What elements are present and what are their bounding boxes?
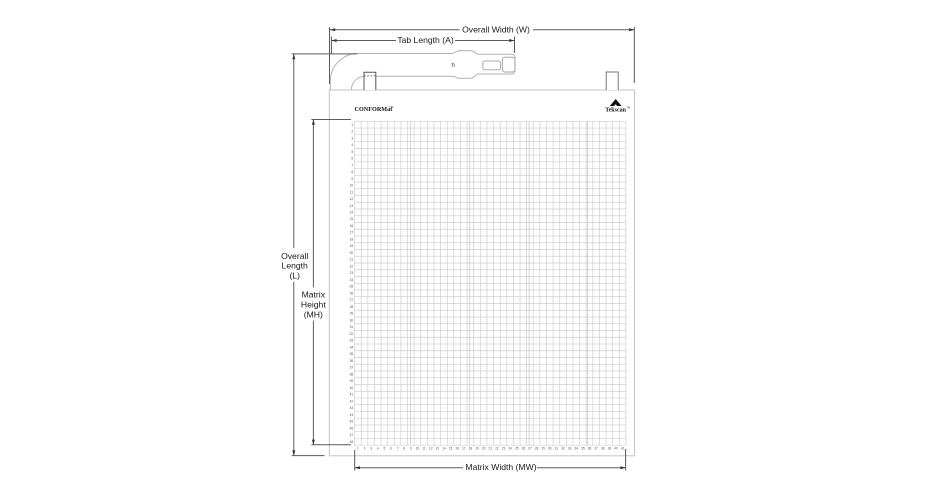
svg-text:1: 1 xyxy=(351,123,353,127)
svg-text:15: 15 xyxy=(449,447,453,451)
svg-text:23: 23 xyxy=(350,271,354,275)
svg-text:34: 34 xyxy=(574,447,578,451)
svg-text:24: 24 xyxy=(350,278,354,282)
svg-text:13: 13 xyxy=(350,204,354,208)
svg-text:8: 8 xyxy=(403,447,405,451)
svg-text:22: 22 xyxy=(495,447,499,451)
svg-text:27: 27 xyxy=(528,447,532,451)
svg-text:35: 35 xyxy=(581,447,585,451)
svg-text:(MH): (MH) xyxy=(304,309,323,319)
svg-text:26: 26 xyxy=(522,447,526,451)
svg-text:7: 7 xyxy=(397,447,399,451)
svg-text:Matrix Width (MW): Matrix Width (MW) xyxy=(465,462,536,472)
svg-text:23: 23 xyxy=(502,447,506,451)
svg-text:4: 4 xyxy=(377,447,379,451)
svg-text:19: 19 xyxy=(350,244,354,248)
svg-text:39: 39 xyxy=(608,447,612,451)
svg-text:42: 42 xyxy=(350,399,354,403)
svg-text:36: 36 xyxy=(588,447,592,451)
svg-text:6: 6 xyxy=(390,447,392,451)
svg-text:37: 37 xyxy=(594,447,598,451)
svg-text:11: 11 xyxy=(422,447,426,451)
svg-text:33: 33 xyxy=(568,447,572,451)
svg-text:10: 10 xyxy=(416,447,420,451)
svg-text:37: 37 xyxy=(350,366,354,370)
svg-text:13: 13 xyxy=(436,447,440,451)
svg-text:6: 6 xyxy=(351,157,353,161)
svg-text:41: 41 xyxy=(350,393,354,397)
svg-text:28: 28 xyxy=(350,305,354,309)
svg-text:18: 18 xyxy=(350,237,354,241)
svg-text:26: 26 xyxy=(350,291,354,295)
svg-text:14: 14 xyxy=(442,447,446,451)
svg-text:29: 29 xyxy=(350,312,354,316)
svg-text:TM: TM xyxy=(389,105,394,109)
svg-text:47: 47 xyxy=(350,433,354,437)
svg-text:Overall: Overall xyxy=(281,251,308,261)
svg-text:9: 9 xyxy=(351,177,353,181)
svg-text:30: 30 xyxy=(350,318,354,322)
svg-text:8: 8 xyxy=(351,170,353,174)
svg-text:15: 15 xyxy=(350,217,354,221)
svg-text:Matrix: Matrix xyxy=(302,290,326,300)
svg-text:38: 38 xyxy=(350,372,354,376)
svg-text:36: 36 xyxy=(350,359,354,363)
svg-text:44: 44 xyxy=(350,413,354,417)
svg-text:48: 48 xyxy=(350,440,354,444)
svg-text:Tab Length (A): Tab Length (A) xyxy=(397,35,454,45)
svg-text:Height: Height xyxy=(301,300,326,310)
svg-text:34: 34 xyxy=(350,345,354,349)
svg-text:39: 39 xyxy=(350,379,354,383)
svg-text:38: 38 xyxy=(601,447,605,451)
svg-text:16: 16 xyxy=(455,447,459,451)
svg-text:3: 3 xyxy=(370,447,372,451)
svg-text:10: 10 xyxy=(350,184,354,188)
svg-text:11: 11 xyxy=(350,190,354,194)
svg-text:31: 31 xyxy=(555,447,559,451)
svg-text:43: 43 xyxy=(350,406,354,410)
svg-text:TM: TM xyxy=(627,107,631,110)
svg-text:2: 2 xyxy=(351,130,353,134)
svg-text:12: 12 xyxy=(350,197,354,201)
svg-text:1: 1 xyxy=(357,447,359,451)
svg-text:3: 3 xyxy=(351,136,353,140)
svg-text:20: 20 xyxy=(350,251,354,255)
svg-text:35: 35 xyxy=(350,352,354,356)
svg-text:24: 24 xyxy=(508,447,512,451)
svg-text:(L): (L) xyxy=(289,270,300,280)
svg-text:30: 30 xyxy=(548,447,552,451)
svg-text:17: 17 xyxy=(462,447,466,451)
svg-text:5: 5 xyxy=(383,447,385,451)
svg-text:4: 4 xyxy=(351,143,353,147)
svg-text:21: 21 xyxy=(488,447,492,451)
svg-text:28: 28 xyxy=(535,447,539,451)
svg-text:2: 2 xyxy=(364,447,366,451)
svg-text:19: 19 xyxy=(475,447,479,451)
svg-text:41: 41 xyxy=(621,447,625,451)
svg-text:22: 22 xyxy=(350,264,354,268)
svg-text:Tekscan: Tekscan xyxy=(605,107,626,113)
svg-text:CONFORMat: CONFORMat xyxy=(355,106,394,113)
svg-text:29: 29 xyxy=(541,447,545,451)
svg-text:9: 9 xyxy=(410,447,412,451)
svg-text:32: 32 xyxy=(350,332,354,336)
svg-text:Length: Length xyxy=(282,261,309,271)
svg-text:20: 20 xyxy=(482,447,486,451)
svg-text:40: 40 xyxy=(350,386,354,390)
svg-text:7: 7 xyxy=(351,163,353,167)
svg-text:17: 17 xyxy=(350,231,354,235)
svg-text:Overall Width (W): Overall Width (W) xyxy=(462,24,530,34)
svg-text:18: 18 xyxy=(469,447,473,451)
svg-text:21: 21 xyxy=(350,258,354,262)
svg-text:45: 45 xyxy=(350,420,354,424)
svg-text:14: 14 xyxy=(350,211,354,215)
svg-text:40: 40 xyxy=(614,447,618,451)
svg-text:33: 33 xyxy=(350,339,354,343)
svg-text:12: 12 xyxy=(429,447,433,451)
svg-text:31: 31 xyxy=(350,325,354,329)
svg-text:27: 27 xyxy=(350,298,354,302)
svg-text:16: 16 xyxy=(350,224,354,228)
svg-text:h: h xyxy=(452,63,455,69)
svg-text:25: 25 xyxy=(515,447,519,451)
svg-text:5: 5 xyxy=(351,150,353,154)
svg-text:32: 32 xyxy=(561,447,565,451)
svg-text:46: 46 xyxy=(350,426,354,430)
svg-text:25: 25 xyxy=(350,285,354,289)
